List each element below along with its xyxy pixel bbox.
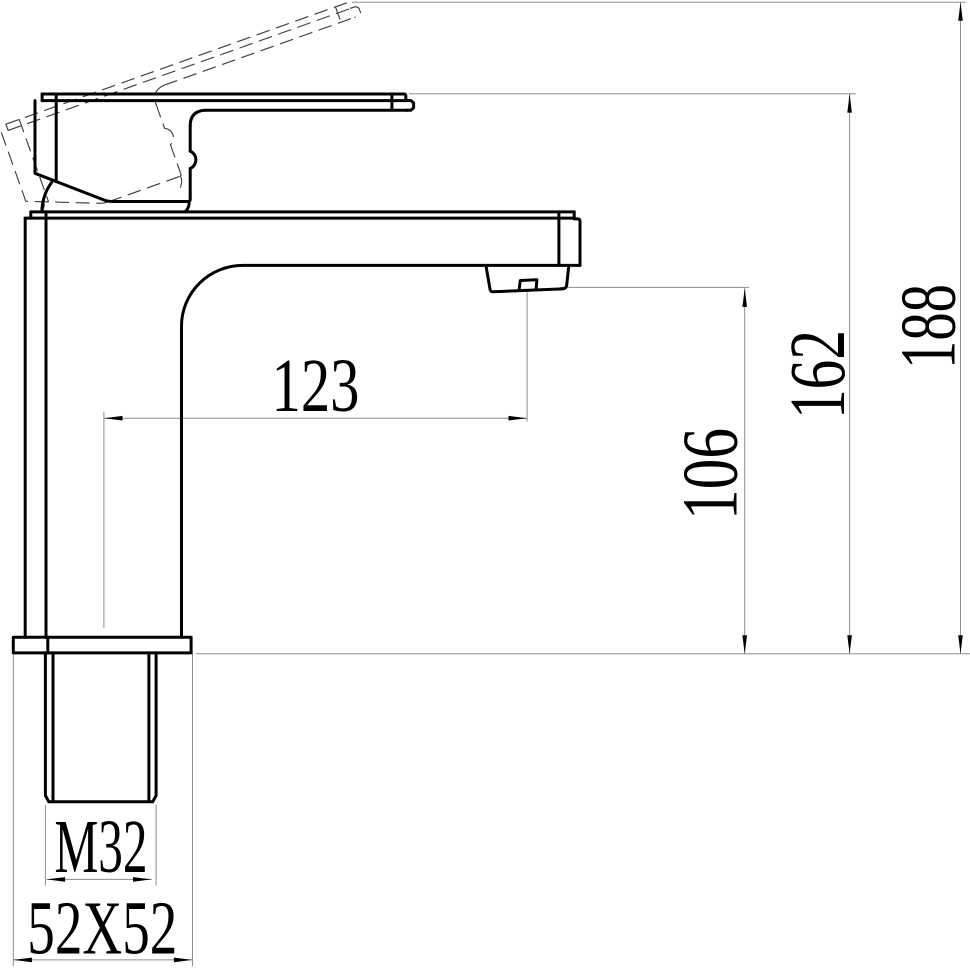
svg-text:123: 123: [272, 344, 360, 428]
svg-text:106: 106: [668, 428, 755, 520]
svg-text:162: 162: [775, 330, 862, 419]
svg-text:188: 188: [886, 284, 970, 369]
svg-text:M32: M32: [55, 805, 148, 889]
svg-text:52X52: 52X52: [27, 887, 177, 970]
